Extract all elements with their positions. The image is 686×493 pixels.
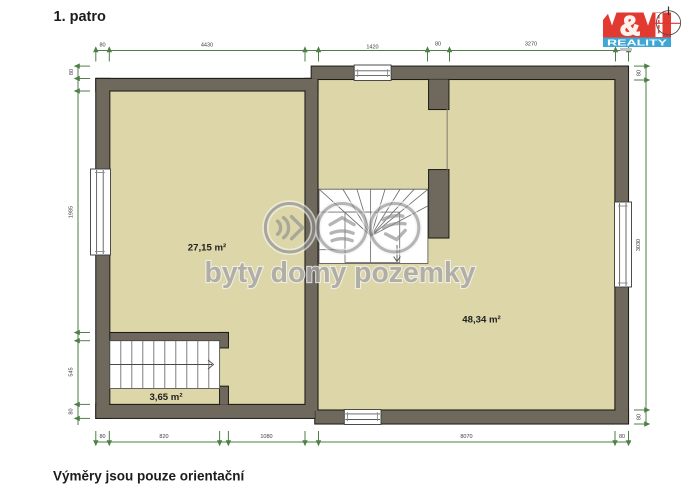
svg-text:1080: 1080 — [260, 434, 272, 440]
svg-text:80: 80 — [69, 408, 75, 414]
svg-text:80: 80 — [619, 434, 625, 440]
svg-text:48,34 m²: 48,34 m² — [462, 315, 500, 326]
svg-text:8070: 8070 — [460, 434, 472, 440]
svg-text:80: 80 — [69, 69, 75, 75]
svg-text:545: 545 — [69, 367, 75, 376]
svg-text:820: 820 — [159, 434, 168, 440]
svg-text:Výměry jsou pouze orientační: Výměry jsou pouze orientační — [53, 469, 246, 484]
svg-text:80: 80 — [99, 43, 105, 49]
svg-text:80: 80 — [637, 70, 643, 76]
svg-text:1420: 1420 — [366, 45, 378, 51]
svg-text:4430: 4430 — [201, 43, 213, 49]
svg-text:1. patro: 1. patro — [54, 9, 107, 25]
svg-text:1985: 1985 — [69, 206, 75, 218]
svg-text:80: 80 — [99, 434, 105, 440]
svg-text:27,15 m²: 27,15 m² — [188, 243, 226, 254]
svg-text:REALITY: REALITY — [607, 37, 668, 47]
svg-text:byty domy pozemky: byty domy pozemky — [205, 257, 476, 289]
svg-text:3030: 3030 — [636, 239, 642, 251]
svg-text:3,65 m²: 3,65 m² — [149, 392, 182, 403]
svg-text:80: 80 — [637, 414, 643, 420]
svg-text:3270: 3270 — [525, 42, 537, 48]
svg-text:80: 80 — [435, 42, 441, 48]
